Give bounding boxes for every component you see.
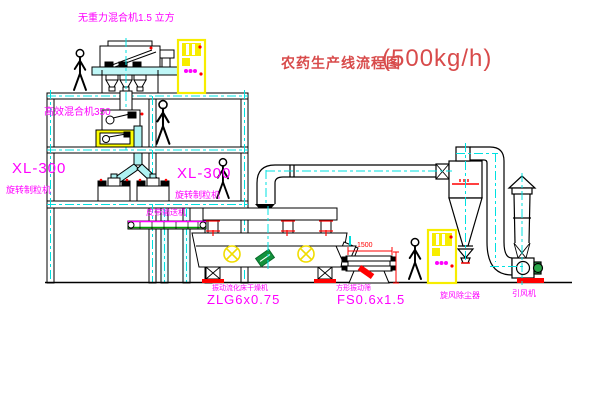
label-granulator-left-model: XL-300: [12, 161, 66, 177]
label-high-efficiency-mixer: 高效混合机350: [44, 108, 111, 119]
rotary-granulator-right: [137, 174, 169, 201]
label-granulator-right-name: 旋转制粒机: [175, 191, 220, 200]
induced-draft-fan: [512, 258, 544, 283]
dimension-1500: 1500: [357, 242, 373, 249]
control-cabinet-top: [178, 40, 205, 93]
label-gravity-mixer: 无重力混合机1.5 立方: [78, 14, 175, 25]
label-screen-model: FS0.6x1.5: [337, 293, 405, 307]
label-cyclone: 旋风除尘器: [440, 292, 480, 300]
label-dryer-model: ZLG6x0.75: [207, 293, 280, 307]
duct-centerlines: [266, 170, 448, 212]
person-figure-top-floor: [74, 50, 86, 91]
control-cabinet-right: [428, 230, 456, 283]
label-granulator-right-model: XL-300: [177, 166, 231, 182]
person-figure-mid-floor: [157, 101, 170, 144]
belt-conveyor: [128, 221, 206, 229]
label-fan: 引风机: [512, 290, 536, 298]
fluid-bed-dryer: [192, 208, 358, 283]
drawing-title-capacity: (500kg/h): [382, 46, 492, 71]
label-belt-conveyor: 皮带输送机: [146, 209, 186, 217]
person-figure-ground: [409, 239, 421, 280]
cad-flow-diagram: 农药生产线流程图 (500kg/h) 无重力混合机1.5 立方 高效混合机350…: [0, 0, 600, 403]
label-granulator-left-name: 旋转制粒机: [6, 186, 51, 195]
